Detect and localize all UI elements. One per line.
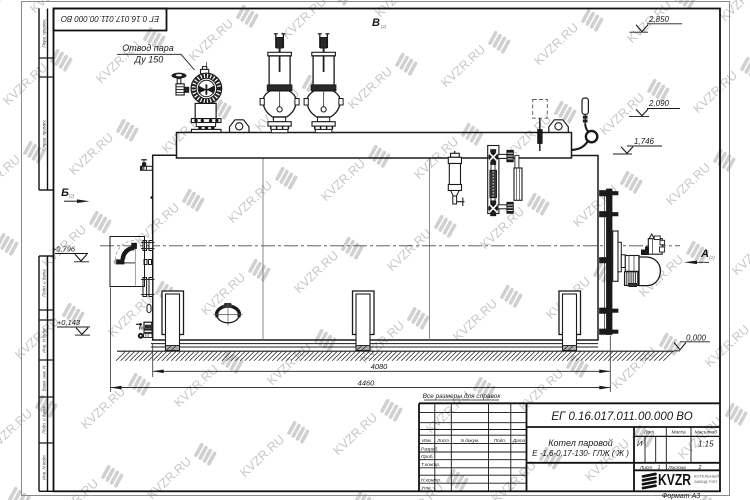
svg-text:Лист: Лист bbox=[436, 438, 449, 443]
svg-text:KVZR.RU: KVZR.RU bbox=[702, 322, 750, 370]
svg-text:KVZR.RU: KVZR.RU bbox=[729, 230, 750, 278]
svg-text:+0,796: +0,796 bbox=[52, 245, 76, 254]
svg-text:В: В bbox=[372, 17, 380, 29]
svg-text:Листов: Листов bbox=[667, 465, 686, 471]
svg-text:Н.контр.: Н.контр. bbox=[421, 478, 441, 484]
svg-text:KVZR.RU: KVZR.RU bbox=[318, 156, 368, 204]
svg-text:KVZR.RU: KVZR.RU bbox=[171, 362, 221, 410]
svg-text:(2): (2) bbox=[381, 24, 387, 29]
svg-text:4460: 4460 bbox=[358, 378, 376, 387]
svg-text:4080: 4080 bbox=[371, 362, 389, 371]
svg-text:Ду 150: Ду 150 bbox=[134, 55, 163, 65]
svg-text:KVZR.RU: KVZR.RU bbox=[438, 42, 488, 90]
svg-text:Подп. и дата: Подп. и дата bbox=[42, 269, 47, 297]
svg-text:Лит.: Лит. bbox=[643, 430, 655, 436]
svg-text:Масштаб: Масштаб bbox=[695, 430, 718, 436]
svg-text:KVZR.RU: KVZR.RU bbox=[570, 182, 620, 230]
svg-text:KVZR.RU: KVZR.RU bbox=[0, 152, 23, 200]
svg-text:Формат А3: Формат А3 bbox=[662, 493, 700, 500]
svg-text:KVZR.RU: KVZR.RU bbox=[477, 204, 527, 252]
svg-text:1,746: 1,746 bbox=[634, 137, 655, 146]
svg-text:KVZR.RU: KVZR.RU bbox=[0, 406, 35, 454]
svg-text:KVZR.RU: KVZR.RU bbox=[489, 458, 539, 500]
svg-text:ЕГ 0.16.017.011.00.000 ВО: ЕГ 0.16.017.011.00.000 ВО bbox=[61, 14, 159, 23]
svg-text:ЕГ 0.16.017.011.00.000 ВО: ЕГ 0.16.017.011.00.000 ВО bbox=[551, 411, 692, 423]
svg-text:(2): (2) bbox=[69, 194, 75, 199]
svg-text:Котел паровой: Котел паровой bbox=[548, 438, 613, 448]
svg-text:Подп.: Подп. bbox=[494, 438, 506, 443]
svg-text:Инв. N подл.: Инв. N подл. bbox=[42, 454, 47, 480]
svg-text:KVZR.RU: KVZR.RU bbox=[330, 410, 380, 458]
svg-text:Т.контр.: Т.контр. bbox=[421, 462, 440, 468]
svg-text:KVZR: KVZR bbox=[658, 472, 691, 489]
svg-text:KVZR.RU: KVZR.RU bbox=[531, 20, 581, 68]
svg-text:KVZR.RU: KVZR.RU bbox=[291, 248, 341, 296]
svg-text:KVZR.RU: KVZR.RU bbox=[345, 64, 395, 112]
svg-text:Все размеры для справок: Все размеры для справок bbox=[423, 392, 502, 400]
svg-text:Перв. примен.: Перв. примен. bbox=[42, 18, 47, 47]
svg-text:KVZR.RU: KVZR.RU bbox=[690, 68, 740, 116]
svg-text:KVZR.RU: KVZR.RU bbox=[66, 130, 116, 178]
svg-text:N докум.: N докум. bbox=[461, 438, 480, 443]
svg-text:1:15: 1:15 bbox=[698, 440, 714, 449]
svg-text:Изм.: Изм. bbox=[422, 438, 432, 443]
svg-text:KVZR.RU: KVZR.RU bbox=[450, 296, 500, 344]
svg-text:KVZR.RU: KVZR.RU bbox=[78, 384, 128, 432]
svg-text:KVZR.RU: KVZR.RU bbox=[597, 90, 647, 138]
svg-text:Проб.: Проб. bbox=[421, 454, 434, 460]
svg-text:2,850: 2,850 bbox=[648, 15, 670, 24]
svg-text:KVZR.RU: KVZR.RU bbox=[0, 60, 50, 108]
svg-text:0,000: 0,000 bbox=[686, 334, 707, 343]
svg-text:Инв. N дубл.: Инв. N дубл. bbox=[42, 327, 47, 352]
svg-text:+0,143: +0,143 bbox=[57, 318, 81, 327]
svg-text:KVZR.RU: KVZR.RU bbox=[279, 0, 329, 42]
svg-text:Взам. инв. N: Взам. инв. N bbox=[42, 365, 47, 391]
svg-text:KVZR.RU: KVZR.RU bbox=[225, 178, 275, 226]
svg-text:KVZR.RU: KVZR.RU bbox=[132, 200, 182, 248]
svg-text:Справ. примеч.: Справ. примеч. bbox=[42, 119, 47, 150]
svg-text:Масса: Масса bbox=[672, 430, 687, 436]
svg-text:KVZR.RU: KVZR.RU bbox=[741, 484, 750, 500]
svg-text:Лист: Лист bbox=[639, 465, 652, 471]
svg-text:KVZR.RU: KVZR.RU bbox=[516, 366, 566, 414]
svg-text:ЗАВОД РЭП: ЗАВОД РЭП bbox=[694, 479, 717, 484]
svg-text:(2): (2) bbox=[709, 255, 715, 260]
svg-text:KVZR.RU: KVZR.RU bbox=[663, 160, 713, 208]
svg-text:Утв.: Утв. bbox=[421, 486, 432, 492]
svg-text:KVZR.RU: KVZR.RU bbox=[237, 432, 287, 480]
svg-text:Е -1,6-0,17-130- ГЛЖ ( Ж ): Е -1,6-0,17-130- ГЛЖ ( Ж ) bbox=[532, 449, 629, 458]
svg-text:KVZR.RU: KVZR.RU bbox=[186, 16, 236, 64]
svg-text:Дата: Дата bbox=[512, 438, 526, 443]
svg-text:KVZR.RU: KVZR.RU bbox=[384, 226, 434, 274]
svg-text:KVZR.RU: KVZR.RU bbox=[144, 454, 194, 500]
svg-text:1: 1 bbox=[658, 465, 661, 471]
svg-text:KVZR.RU: KVZR.RU bbox=[12, 314, 62, 362]
svg-text:KVZR.RU: KVZR.RU bbox=[717, 0, 750, 24]
svg-text:Подп. и дата: Подп. и дата bbox=[42, 406, 47, 434]
svg-text:Разраб.: Разраб. bbox=[421, 446, 438, 452]
svg-text:А: А bbox=[700, 248, 709, 260]
svg-text:2: 2 bbox=[698, 465, 702, 471]
svg-text:Отвод пара: Отвод пара bbox=[122, 43, 173, 53]
svg-text:2,090: 2,090 bbox=[648, 99, 670, 108]
svg-text:И: И bbox=[637, 439, 643, 448]
svg-text:KVZR.RU: KVZR.RU bbox=[51, 476, 101, 500]
svg-text:КОТЕЛЬНЫЙ: КОТЕЛЬНЫЙ bbox=[694, 474, 719, 479]
